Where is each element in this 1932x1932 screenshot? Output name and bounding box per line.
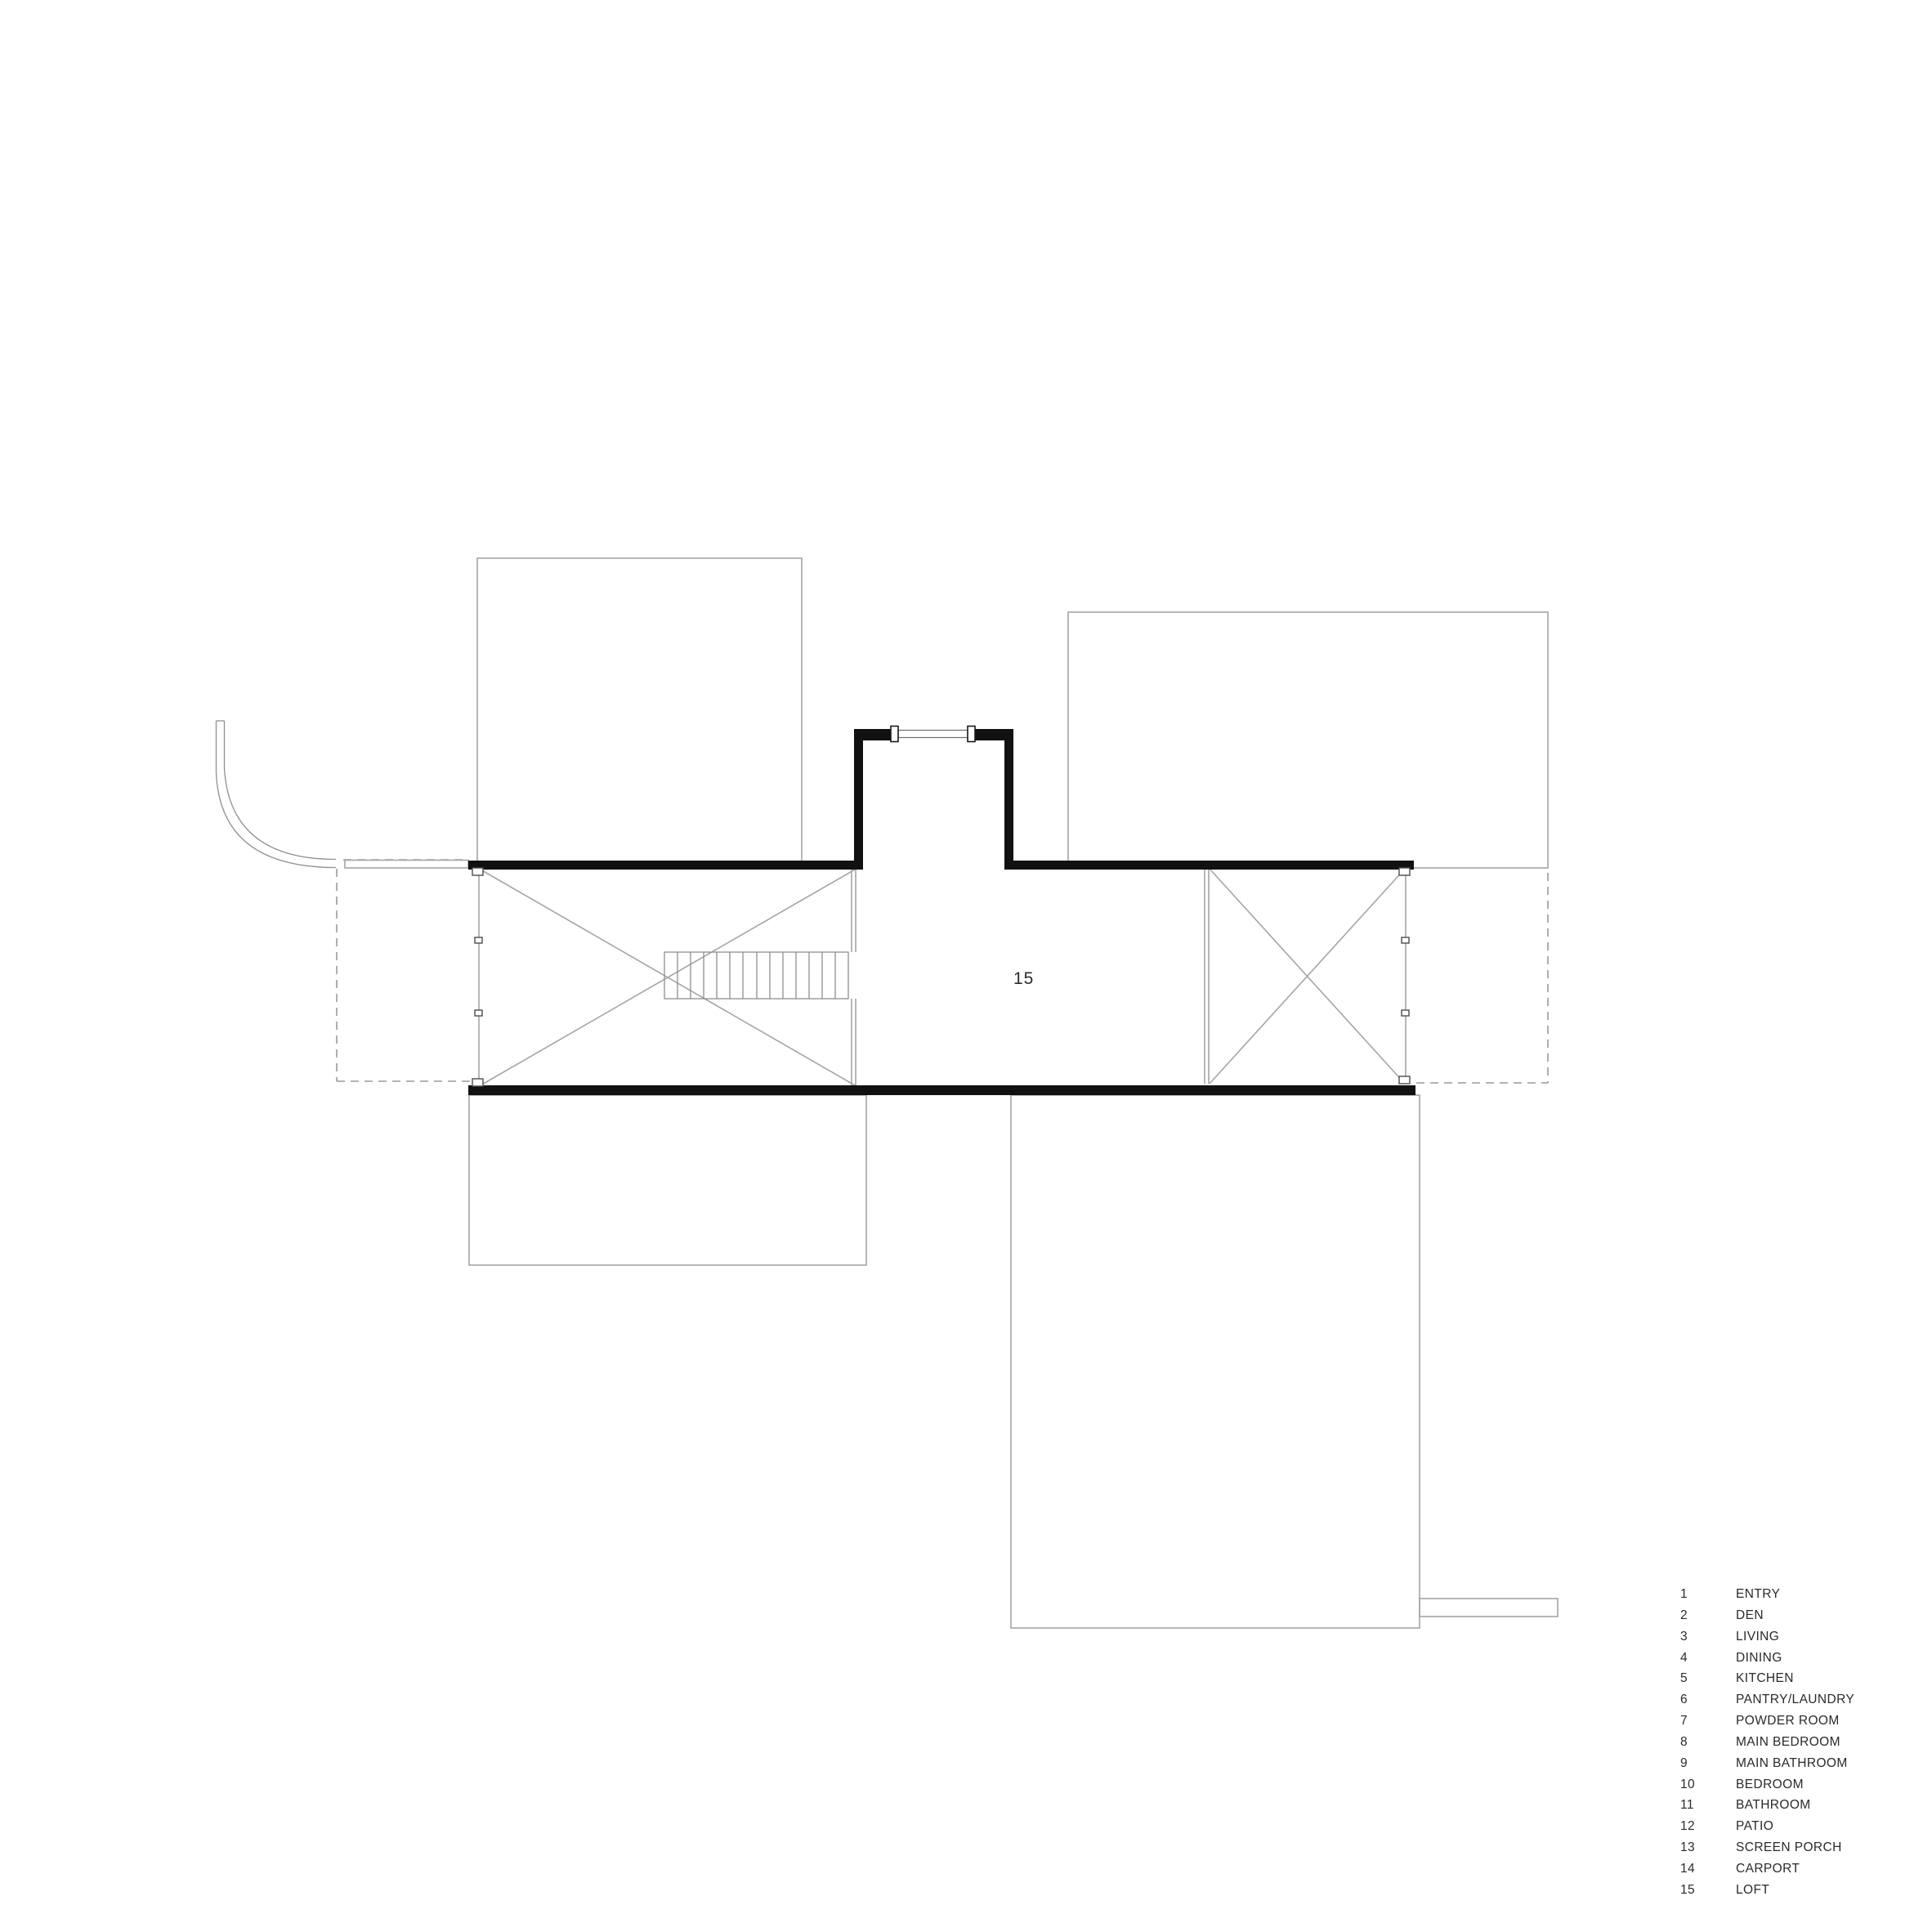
legend-number: 15 (1680, 1880, 1736, 1901)
legend-number: 6 (1680, 1689, 1736, 1711)
legend-label: ENTRY (1736, 1584, 1780, 1605)
legend-row: 1ENTRY (1680, 1584, 1854, 1605)
room-label-loft: 15 (1013, 969, 1034, 988)
legend-row: 14CARPORT (1680, 1858, 1854, 1880)
legend-label: MAIN BATHROOM (1736, 1753, 1848, 1774)
edge-band (345, 861, 468, 869)
legend-number: 10 (1680, 1774, 1736, 1796)
legend-number: 13 (1680, 1837, 1736, 1858)
loft-interior-lines (479, 869, 1406, 1085)
legend-number: 1 (1680, 1584, 1736, 1605)
mullion-marker (475, 937, 482, 943)
legend-label: DEN (1736, 1605, 1764, 1626)
window-post-right (968, 727, 975, 742)
legend-number: 2 (1680, 1605, 1736, 1626)
dormer-window (891, 727, 975, 742)
legend-row: 6PANTRY/LAUNDRY (1680, 1689, 1854, 1711)
outline-rect-bottom-left (469, 1095, 866, 1265)
legend-row: 7POWDER ROOM (1680, 1711, 1854, 1732)
floor-plan-drawing: 15 (0, 0, 1932, 1932)
legend-label: LOFT (1736, 1880, 1769, 1901)
legend-row: 5KITCHEN (1680, 1668, 1854, 1689)
legend-number: 4 (1680, 1648, 1736, 1669)
legend: 1ENTRY2DEN3LIVING4DINING5KITCHEN6PANTRY/… (1680, 1584, 1854, 1901)
legend-row: 8MAIN BEDROOM (1680, 1732, 1854, 1753)
mullion-marker (1402, 937, 1409, 943)
window-post-left (891, 727, 898, 742)
wall-top-right-segment (1013, 861, 1414, 870)
window-glazing (898, 731, 968, 738)
legend-row: 11BATHROOM (1680, 1795, 1854, 1816)
legend-label: SCREEN PORCH (1736, 1837, 1842, 1858)
legend-row: 4DINING (1680, 1648, 1854, 1669)
legend-label: KITCHEN (1736, 1668, 1794, 1689)
legend-label: DINING (1736, 1648, 1782, 1669)
legend-number: 5 (1680, 1668, 1736, 1689)
curved-wall (217, 721, 469, 868)
column-marker (1399, 1076, 1410, 1084)
wall-dormer-north-left (854, 729, 892, 740)
loft-walls (468, 729, 1415, 1095)
legend-label: PANTRY/LAUNDRY (1736, 1689, 1854, 1711)
legend-number: 14 (1680, 1858, 1736, 1880)
stair-treads (678, 952, 835, 999)
legend-label: POWDER ROOM (1736, 1711, 1840, 1732)
legend-label: BEDROOM (1736, 1774, 1804, 1796)
legend-list: 1ENTRY2DEN3LIVING4DINING5KITCHEN6PANTRY/… (1680, 1584, 1854, 1901)
column-marker (1399, 868, 1410, 875)
legend-row: 3LIVING (1680, 1626, 1854, 1648)
legend-row: 9MAIN BATHROOM (1680, 1753, 1854, 1774)
legend-number: 9 (1680, 1753, 1736, 1774)
legend-label: BATHROOM (1736, 1795, 1811, 1816)
column-marker (472, 1079, 483, 1086)
legend-number: 7 (1680, 1711, 1736, 1732)
wall-dormer-west (854, 729, 863, 870)
mullion-marker (1402, 1010, 1409, 1016)
column-marker (472, 868, 483, 875)
legend-number: 11 (1680, 1795, 1736, 1816)
wall-top-left-segment (468, 861, 854, 870)
wall-dormer-east (1004, 729, 1013, 870)
legend-label: CARPORT (1736, 1858, 1800, 1880)
column-markers (472, 868, 1410, 1086)
legend-number: 3 (1680, 1626, 1736, 1648)
curved-wall-outer (217, 721, 337, 868)
outline-stub-bottom-right (1420, 1599, 1558, 1617)
dashed-deck-outlines (337, 860, 1548, 1083)
curved-wall-inner (225, 721, 337, 860)
legend-row: 2DEN (1680, 1605, 1854, 1626)
outline-rect-bottom-right (1011, 1095, 1420, 1628)
legend-row: 13SCREEN PORCH (1680, 1837, 1854, 1858)
outline-rect-top-left (477, 558, 802, 862)
wall-dormer-north-right (974, 729, 1013, 740)
legend-label: LIVING (1736, 1626, 1779, 1648)
page: { "page": { "background": "#ffffff" }, "… (0, 0, 1932, 1932)
outline-rect-top-right (1068, 612, 1548, 868)
legend-row: 12PATIO (1680, 1816, 1854, 1837)
legend-label: MAIN BEDROOM (1736, 1732, 1840, 1753)
legend-number: 12 (1680, 1816, 1736, 1837)
legend-label: PATIO (1736, 1816, 1773, 1837)
legend-row: 10BEDROOM (1680, 1774, 1854, 1796)
mullion-marker (475, 1010, 482, 1016)
legend-number: 8 (1680, 1732, 1736, 1753)
wall-bottom (468, 1085, 1415, 1095)
legend-row: 15LOFT (1680, 1880, 1854, 1901)
